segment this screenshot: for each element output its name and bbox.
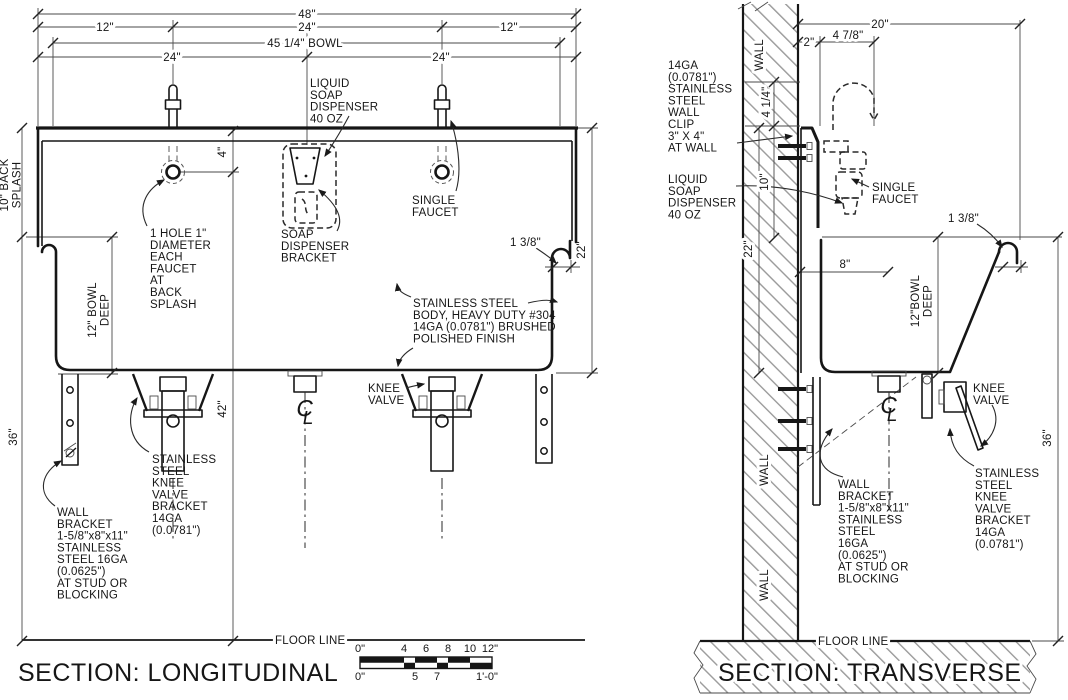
- note-knee-valve: KNEEVALVE: [368, 383, 404, 407]
- dim-drain-offset: 8": [840, 259, 851, 271]
- faucet-right: [431, 85, 454, 184]
- floor-line-label: FLOOR LINE: [818, 636, 889, 648]
- scale-bottom-5: 5: [412, 671, 418, 683]
- sink-profile-transverse: [801, 128, 1017, 373]
- scale-bottom-0: 0": [355, 671, 365, 683]
- scale-top-12: 12": [482, 643, 498, 655]
- scale-bar: 0" 4 6 8 10 12" 0" 5 7 1'-0": [355, 643, 498, 683]
- dim-backsplash-1: 10" BACK: [0, 158, 11, 211]
- dim-backsplash-2: SPLASH: [12, 162, 24, 209]
- dim-overall-depth: 22": [743, 240, 755, 257]
- dim-rim-roll: 1 3/8": [948, 213, 979, 225]
- dim-bowl-deep-2: DEEP: [100, 294, 112, 326]
- dim-floor-to-rim: 36": [1042, 429, 1054, 446]
- faucet-left: [162, 85, 185, 184]
- note-liquid-soap: LIQUIDSOAPDISPENSER40 OZ: [668, 174, 736, 221]
- dim-bowl-width: 45 1/4" BOWL: [267, 38, 343, 50]
- dim-rim-roll: 1 3/8": [510, 237, 541, 249]
- sink-sections-drawing: C L: [0, 0, 1068, 700]
- note-single-faucet: SINGLEFAUCET: [412, 195, 459, 219]
- dim-faucet-reach: 4 7/8": [833, 30, 864, 42]
- dim-backsplash-thk: 2": [804, 37, 815, 49]
- dim-bowl-deep-2: DEEP: [923, 285, 935, 317]
- centerline-symbol: [293, 395, 318, 429]
- knee-valve-assembly-right: [402, 374, 482, 542]
- dim-seg-left: 12": [96, 22, 113, 34]
- dim-seg-mid: 24": [298, 22, 315, 34]
- longitudinal-section: 48" 12" 24" 12" 45 1/4" BOWL 24" 24" 10"…: [0, 8, 598, 687]
- scale-bottom-7: 7: [434, 671, 440, 683]
- longitudinal-notes: LIQUIDSOAPDISPENSER40 OZ SOAPDISPENSERBR…: [57, 78, 556, 647]
- dim-counter-depth: 20": [871, 19, 888, 31]
- note-knee-valve: KNEEVALVE: [973, 383, 1009, 407]
- note-single-faucet: SINGLEFAUCET: [872, 182, 919, 206]
- scale-top-10: 10: [464, 643, 476, 655]
- dim-overall: 48": [298, 9, 315, 21]
- wall-label-mid: WALL: [759, 454, 771, 486]
- drawing-sheet: C L: [0, 0, 1068, 700]
- transverse-section: 20" 2" 4 7/8" 4 1/4" 10" 22" 8" 12"BOWL …: [668, 2, 1064, 693]
- scale-top-8: 8: [445, 643, 451, 655]
- transverse-title: SECTION: TRANSVERSE: [718, 659, 1022, 687]
- soap-dispenser: [283, 144, 336, 228]
- dim-bowl-deep-1: 12"BOWL: [910, 275, 922, 328]
- centerline-symbol: [877, 392, 902, 426]
- note-knee-bracket: STAINLESSSTEELKNEEVALVEBRACKET14GA(0.078…: [975, 468, 1039, 551]
- floor-line-label: FLOOR LINE: [275, 635, 346, 647]
- dim-faucet-drop: 4": [217, 147, 229, 158]
- dim-overall-depth: 22": [576, 241, 588, 258]
- note-body-spec: STAINLESS STEELBODY, HEAVY DUTY #30414GA…: [413, 298, 556, 345]
- note-liquid-soap: LIQUIDSOAPDISPENSER40 OZ: [310, 78, 378, 125]
- dim-faucet-right: 24": [432, 52, 449, 64]
- wall-label-bottom: WALL: [759, 569, 771, 601]
- longitudinal-title: SECTION: LONGITUDINAL: [18, 659, 338, 687]
- dim-valve-height: 42": [217, 400, 229, 417]
- dim-bowl-deep-1: 12" BOWL: [87, 282, 99, 338]
- note-knee-bracket: STAINLESSSTEELKNEEVALVEBRACKET14GA(0.078…: [152, 454, 216, 537]
- scale-bar-segments: [360, 657, 492, 669]
- note-wall-clip: 14GA(0.0781")STAINLESSSTEELWALLCLIP3" X …: [668, 60, 732, 155]
- dim-seg-right: 12": [500, 22, 517, 34]
- scale-bottom-12: 1'-0": [476, 671, 498, 683]
- note-faucet-hole: 1 HOLE 1"DIAMETEREACHFAUCETATBACKSPLASH: [150, 228, 211, 311]
- wall-label-top: WALL: [754, 39, 766, 71]
- scale-top-0: 0": [355, 643, 365, 655]
- drain-longitudinal: [288, 371, 322, 548]
- dim-splash-height: 10": [759, 173, 771, 190]
- single-faucet-transverse: [824, 83, 878, 214]
- dim-spout-height: 4 1/4": [761, 87, 773, 118]
- scale-top-4: 4: [401, 643, 407, 655]
- transverse-notes: 14GA(0.0781")STAINLESSSTEELWALLCLIP3" X …: [668, 60, 1039, 648]
- note-soap-bracket: SOAPDISPENSERBRACKET: [281, 229, 349, 265]
- scale-top-6: 6: [423, 643, 429, 655]
- note-wall-bracket: WALLBRACKET1-5/8"x8"x11"STAINLESSSTEEL 1…: [57, 507, 128, 602]
- note-wall-bracket: WALLBRACKET1-5/8"x8"x11"STAINLESSSTEEL16…: [838, 479, 909, 585]
- dim-floor-to-rim: 36": [8, 428, 20, 445]
- dim-faucet-left: 24": [163, 52, 180, 64]
